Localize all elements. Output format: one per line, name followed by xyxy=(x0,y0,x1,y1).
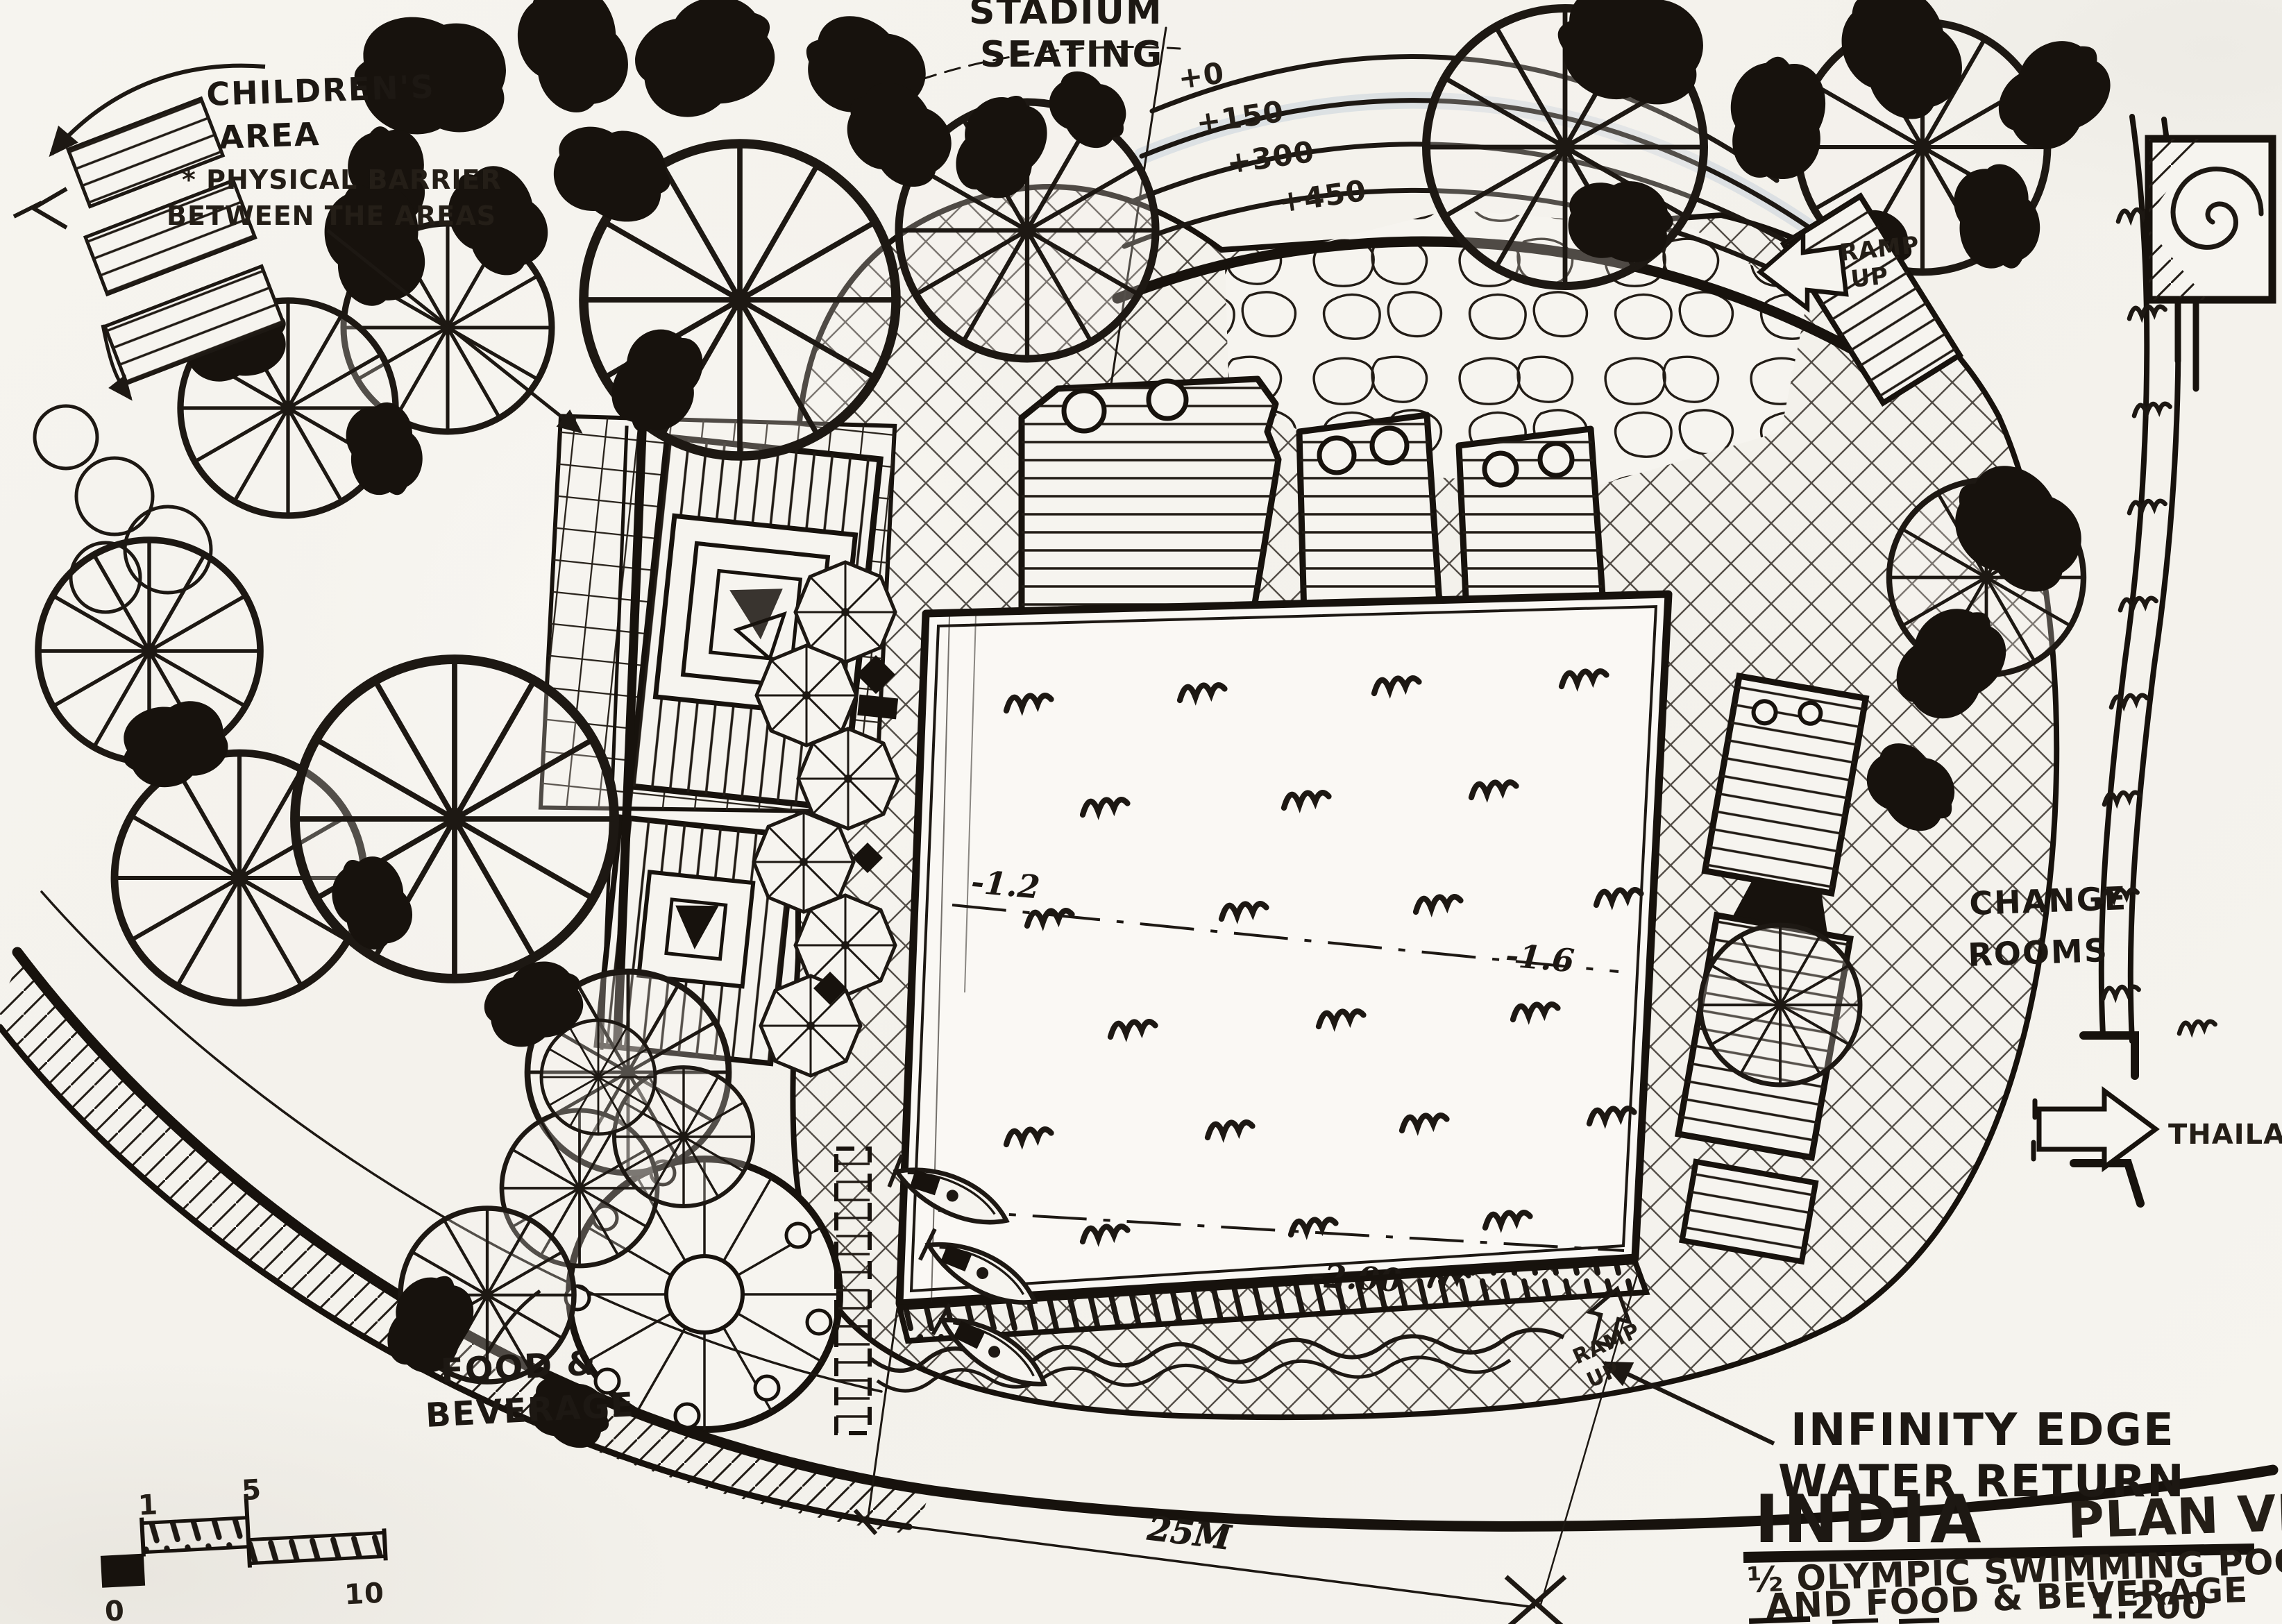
deck-tree-hole xyxy=(1485,453,1516,485)
depth-label-shallow: -1.2 xyxy=(970,863,1041,906)
view-type-label: PLAN VIEW xyxy=(2067,1480,2282,1550)
thailand-arrow-icon xyxy=(2039,1091,2156,1167)
river-walk xyxy=(2034,117,2272,1203)
scale-tick-10: 10 xyxy=(344,1578,385,1612)
swimming-pool: -1.2 -1.6 -2.00 xyxy=(899,594,1668,1303)
scale-ratio-label: 1:200 xyxy=(2089,1586,2208,1624)
path-bracket-lower xyxy=(2074,1163,2140,1203)
scale-tick-1: 1 xyxy=(137,1489,159,1521)
tree-icon xyxy=(1700,925,1860,1085)
path-bracket-upper xyxy=(2084,1035,2135,1076)
deck-hub xyxy=(666,1256,743,1333)
shrub-icon xyxy=(502,0,640,125)
elevation-label-300: +300 xyxy=(1225,135,1317,180)
scale-tick-5: 5 xyxy=(241,1474,262,1507)
shrub-icon xyxy=(622,0,791,130)
elevation-label-450: +450 xyxy=(1277,174,1369,219)
deck-tree-hole xyxy=(1540,443,1572,475)
scale-bar-seg-2 xyxy=(248,1532,386,1563)
boardwalk-strip xyxy=(836,1149,870,1433)
plan-drawing: +0 +150 +300 +450 xyxy=(0,0,2282,1624)
dimension-cross xyxy=(1506,1577,1565,1624)
stadium-seating-label-1: STADIUM xyxy=(969,0,1163,33)
infinity-edge-label-1: INFINITY EDGE xyxy=(1791,1405,2175,1456)
deck-tree-hole xyxy=(1149,381,1186,418)
scale-bar-seg-1 xyxy=(142,1518,248,1553)
physical-barrier-label-2: BETWEEN THE AREAS xyxy=(167,201,496,231)
change-rooms-label-2: ROOMS xyxy=(1967,931,2108,974)
food-beverage-label-1: FOOD & xyxy=(440,1344,598,1391)
umbrella-icon xyxy=(798,729,898,829)
umbrella-icon xyxy=(761,976,861,1076)
deck-tree-hole xyxy=(1064,391,1104,431)
change-rooms-label-1: CHANGE xyxy=(1968,879,2127,922)
stadium-seating-label-2: SEATING xyxy=(980,34,1163,76)
plan-sheet: +0 +150 +300 +450 xyxy=(0,0,2282,1624)
deck-tree-hole xyxy=(1319,438,1354,473)
thailand-label: THAILAND xyxy=(2168,1119,2282,1151)
service-block xyxy=(857,695,898,720)
tree-icon xyxy=(295,659,614,979)
tree-icon xyxy=(541,1020,655,1134)
elevation-label-0: +0 xyxy=(1176,56,1227,96)
scale-tick-0: 0 xyxy=(104,1595,126,1624)
childrens-area-label-2: AREA xyxy=(218,115,321,156)
childrens-area-label-1: CHILDREN'S xyxy=(205,68,435,113)
scale-bar-solid xyxy=(101,1554,145,1588)
physical-barrier-label-1: * PHYSICAL BARRIER xyxy=(182,164,502,195)
scale-bar: 0 1 5 10 xyxy=(96,1468,388,1624)
seating-elevation-labels: +0 +150 +300 +450 xyxy=(1176,56,1369,219)
ramp-top-label-2: UP xyxy=(1850,262,1890,293)
deck-tree-hole xyxy=(1372,428,1407,463)
elevation-label-150: +150 xyxy=(1194,94,1286,140)
project-title: INDIA xyxy=(1755,1482,1986,1558)
chevron-arrow xyxy=(14,189,67,228)
depth-label-mid: -1.6 xyxy=(1504,936,1575,979)
